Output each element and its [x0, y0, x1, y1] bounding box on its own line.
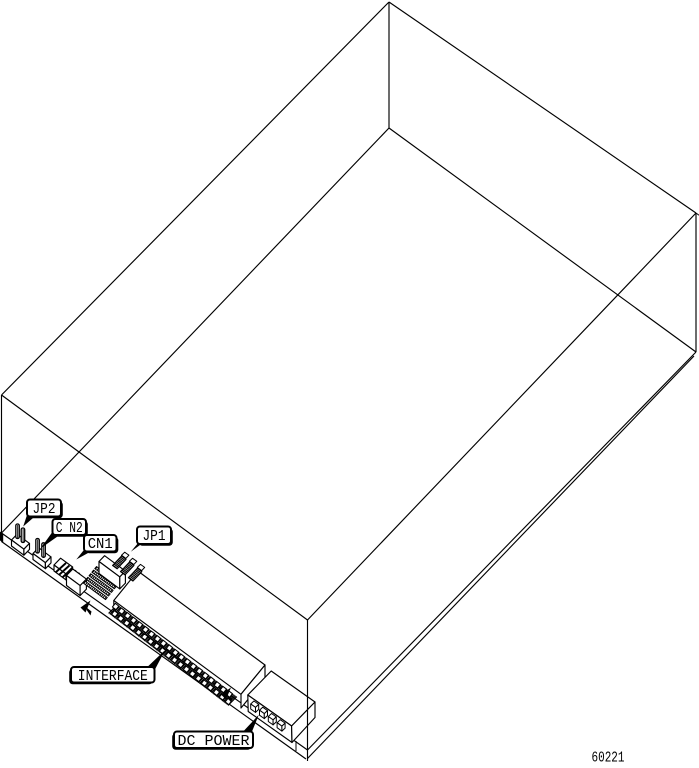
- svg-text:JP2: JP2: [33, 501, 56, 518]
- svg-text:C N2: C N2: [56, 520, 83, 537]
- svg-text:60221: 60221: [592, 749, 625, 766]
- svg-text:CN1: CN1: [88, 536, 113, 553]
- svg-text:DC POWER: DC POWER: [178, 733, 251, 750]
- svg-text:JP1: JP1: [143, 528, 166, 545]
- svg-text:INTERFACE: INTERFACE: [78, 668, 148, 685]
